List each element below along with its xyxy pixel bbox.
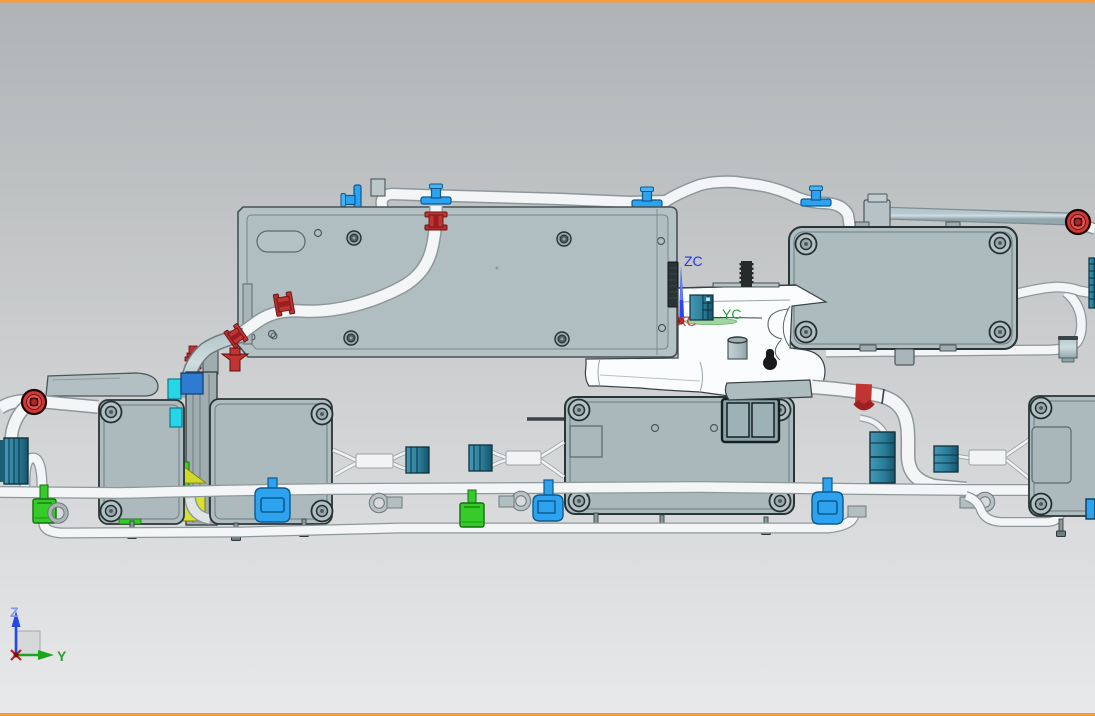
svg-text:ZC: ZC: [684, 253, 703, 269]
svg-text:Z: Z: [10, 604, 19, 620]
svg-text:YC: YC: [722, 306, 741, 322]
svg-text:Y: Y: [57, 648, 67, 664]
